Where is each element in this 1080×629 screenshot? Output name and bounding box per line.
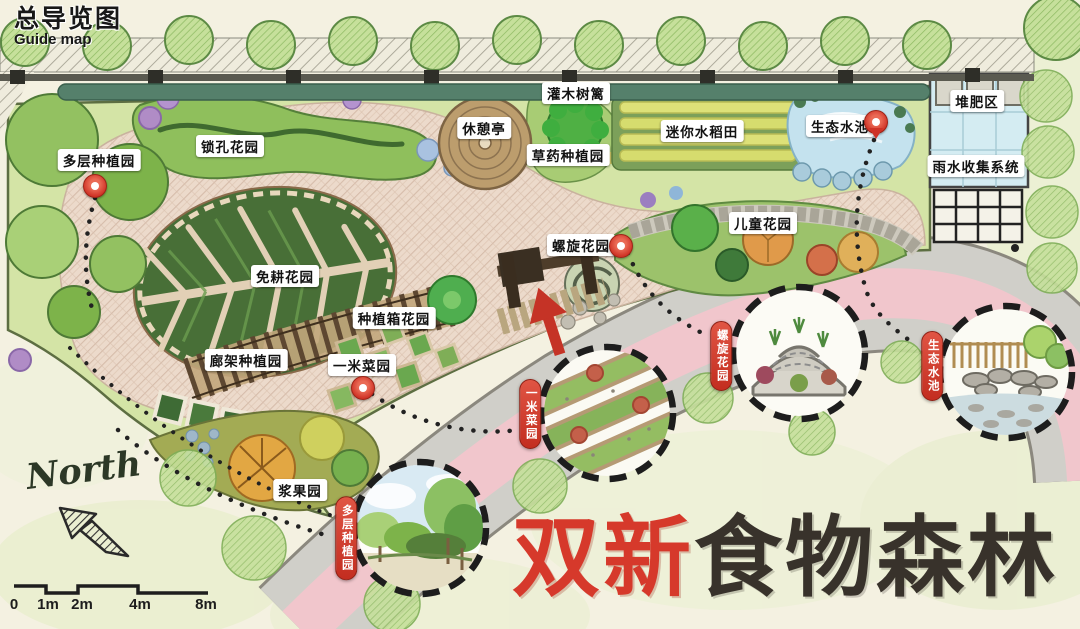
- tag-one-meter-garden: 一米菜园: [519, 379, 541, 449]
- eco-pond-sketch: [936, 302, 1076, 442]
- collection-grid: [934, 190, 1022, 252]
- page-header: 总导览图 Guide map: [14, 6, 122, 48]
- map-label-rainwater-system: 雨水收集系统: [928, 155, 1025, 177]
- scale-tick-8m: 8m: [195, 596, 217, 613]
- map-label-pergola-garden: 廊架种植园: [205, 349, 288, 371]
- map-label-rest-pavilion: 休憩亭: [457, 117, 511, 139]
- scale-tick-2m: 2m: [71, 596, 93, 613]
- map-label-children-garden: 儿童花园: [729, 212, 797, 234]
- page-title: 总导览图: [14, 6, 122, 32]
- one-meter-sketch: [537, 343, 677, 483]
- shrub-hedge: [58, 84, 930, 100]
- callout-eco-pond: [936, 302, 1076, 442]
- map-label-compost-area: 堆肥区: [950, 90, 1004, 112]
- scale-tick-4m: 4m: [129, 596, 151, 613]
- callout-multi-layer-garden: [350, 458, 490, 598]
- callout-one-meter-garden: [537, 343, 677, 483]
- spiral-sketch: [729, 283, 869, 423]
- map-label-keyhole-garden: 锁孔花园: [196, 135, 264, 157]
- marker-eco-pond-pin: [864, 110, 888, 134]
- marker-spiral-garden: [609, 234, 633, 258]
- callout-spiral-garden: [729, 283, 869, 423]
- marker-multi-layer-garden: [83, 174, 107, 198]
- map-label-herb-garden: 草药种植园: [527, 144, 610, 166]
- map-label-one-meter-garden: 一米菜园: [328, 354, 396, 376]
- map-label-planter-box-garden: 种植箱花园: [353, 307, 436, 329]
- map-label-berry-garden: 浆果园: [273, 479, 327, 501]
- scale-tick-0: 0: [10, 596, 18, 613]
- multi-layer-sketch: [350, 458, 490, 598]
- map-label-shrub-hedge: 灌木树篱: [542, 82, 610, 104]
- page-subtitle: Guide map: [14, 32, 122, 48]
- scale-tick-1m: 1m: [37, 596, 59, 613]
- map-label-mini-rice-paddy: 迷你水稻田: [661, 120, 744, 142]
- main-title: 双新食物森林: [512, 514, 1058, 602]
- rest-pavilion: [439, 97, 531, 189]
- main-title-rest: 食物森林: [694, 506, 1058, 609]
- main-title-highlight: 双新: [512, 506, 694, 609]
- map-label-spiral-garden: 螺旋花园: [547, 234, 615, 256]
- map-label-multi-layer-garden: 多层种植园: [58, 149, 141, 171]
- tag-eco-pond: 生态水池: [921, 331, 943, 401]
- tag-spiral-garden: 螺旋花园: [710, 321, 732, 391]
- tag-multi-layer-garden: 多层种植园: [335, 496, 357, 580]
- marker-one-meter-garden: [351, 376, 375, 400]
- guide-map-page: 总导览图 Guide map 多层种植园 锁孔花园 灌木树篱 休憩亭 草药种植园…: [0, 0, 1080, 629]
- map-label-no-till-garden: 免耕花园: [251, 265, 319, 287]
